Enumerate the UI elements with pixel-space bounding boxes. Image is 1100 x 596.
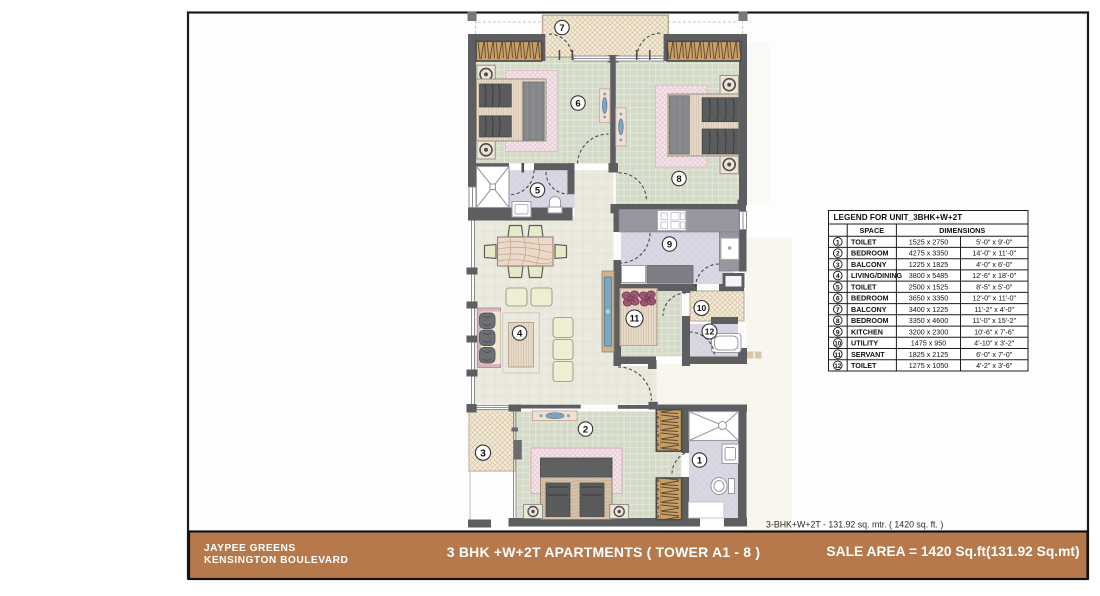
svg-text:5: 5: [535, 185, 541, 196]
svg-text:11: 11: [835, 352, 842, 359]
svg-text:12'-6" x 18'-0": 12'-6" x 18'-0": [972, 271, 1017, 280]
svg-text:UTILITY: UTILITY: [851, 339, 878, 348]
svg-text:BALCONY: BALCONY: [851, 305, 887, 314]
svg-text:10: 10: [834, 341, 841, 348]
svg-text:11'-2" x 4'-0": 11'-2" x 4'-0": [974, 305, 1014, 314]
svg-text:6: 6: [575, 98, 580, 109]
svg-text:12'-0" x 11'-0": 12'-0" x 11'-0": [972, 294, 1016, 303]
svg-text:6'-0" x 7'-0": 6'-0" x 7'-0": [976, 350, 1013, 359]
svg-text:2500 x 1525: 2500 x 1525: [909, 282, 949, 291]
svg-text:3650 x 3350: 3650 x 3350: [909, 294, 949, 303]
svg-text:LIVING/DINING: LIVING/DINING: [851, 271, 903, 280]
svg-text:JAYPEE GREENS: JAYPEE GREENS: [204, 543, 296, 554]
svg-text:10'-6" x 7'-6": 10'-6" x 7'-6": [974, 327, 1015, 336]
svg-text:4275 x 3350: 4275 x 3350: [909, 249, 949, 258]
svg-text:12: 12: [705, 327, 715, 337]
svg-text:8'-5" x 5'-0": 8'-5" x 5'-0": [976, 282, 1013, 291]
svg-text:4'-10" x 3'-2": 4'-10" x 3'-2": [974, 339, 1015, 348]
svg-text:1: 1: [836, 239, 840, 246]
svg-text:14'-0" x 11'-0": 14'-0" x 11'-0": [972, 249, 1016, 258]
svg-text:11: 11: [630, 314, 640, 324]
svg-text:LEGEND FOR UNIT_3BHK+W+2T: LEGEND FOR UNIT_3BHK+W+2T: [834, 213, 963, 222]
svg-text:TOILET: TOILET: [851, 361, 877, 370]
svg-text:4: 4: [836, 273, 840, 280]
svg-text:TOILET: TOILET: [851, 237, 877, 246]
svg-text:4'-0" x 6'-0": 4'-0" x 6'-0": [976, 260, 1013, 269]
svg-text:3-BHK+W+2T - 131.92 sq. mtr. (: 3-BHK+W+2T - 131.92 sq. mtr. ( 1420 sq. …: [766, 520, 943, 530]
svg-text:DIMENSIONS: DIMENSIONS: [939, 226, 985, 235]
svg-text:TOILET: TOILET: [851, 282, 877, 291]
svg-text:SERVANT: SERVANT: [851, 350, 885, 359]
svg-text:5: 5: [836, 284, 840, 291]
svg-text:BALCONY: BALCONY: [851, 260, 887, 269]
svg-text:3: 3: [836, 262, 840, 269]
svg-text:KITCHEN: KITCHEN: [851, 327, 883, 336]
svg-text:3 BHK +W+2T APARTMENTS ( TOWE: 3 BHK +W+2T APARTMENTS ( TOWER A1 - 8 ): [447, 544, 761, 560]
svg-text:3350 x 4600: 3350 x 4600: [909, 316, 949, 325]
svg-text:1475 x 950: 1475 x 950: [911, 339, 947, 348]
svg-text:BEDROOM: BEDROOM: [851, 316, 889, 325]
svg-text:2: 2: [583, 424, 588, 435]
svg-text:3800 x 5485: 3800 x 5485: [909, 271, 949, 280]
svg-text:10: 10: [697, 303, 707, 313]
svg-text:12: 12: [834, 363, 841, 370]
svg-text:7: 7: [836, 307, 840, 314]
svg-text:6: 6: [836, 296, 840, 303]
svg-text:3400 x 1225: 3400 x 1225: [909, 305, 949, 314]
svg-text:2: 2: [836, 251, 840, 258]
svg-text:1825 x 2125: 1825 x 2125: [909, 350, 949, 359]
svg-text:8: 8: [836, 318, 840, 325]
svg-text:3200 x 2300: 3200 x 2300: [909, 327, 949, 336]
svg-text:5'-0" x 9'-0": 5'-0" x 9'-0": [976, 237, 1013, 246]
svg-text:9: 9: [836, 329, 840, 336]
svg-text:9: 9: [667, 239, 672, 250]
svg-text:1225 x 1825: 1225 x 1825: [909, 260, 949, 269]
svg-text:KENSINGTON BOULEVARD: KENSINGTON BOULEVARD: [204, 555, 348, 566]
svg-text:4'-2" x 3'-6": 4'-2" x 3'-6": [976, 361, 1013, 370]
svg-text:SALE AREA = 1420 Sq.ft(131.92: SALE AREA = 1420 Sq.ft(131.92 Sq.mt): [826, 544, 1079, 559]
svg-text:1525 x 2750: 1525 x 2750: [909, 237, 949, 246]
svg-text:8: 8: [676, 174, 681, 185]
svg-text:1275 x 1050: 1275 x 1050: [909, 361, 949, 370]
svg-text:7: 7: [559, 23, 564, 34]
svg-text:BEDROOM: BEDROOM: [851, 294, 889, 303]
svg-text:1: 1: [697, 455, 703, 466]
svg-text:3: 3: [480, 448, 486, 459]
svg-text:4: 4: [517, 328, 523, 339]
svg-text:SPACE: SPACE: [859, 226, 884, 235]
svg-text:BEDROOM: BEDROOM: [851, 249, 889, 258]
svg-text:11'-0" x 15'-2": 11'-0" x 15'-2": [972, 316, 1016, 325]
